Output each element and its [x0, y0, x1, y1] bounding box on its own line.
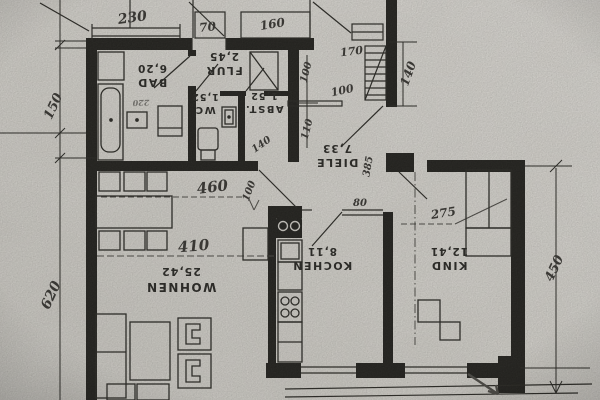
photo-vignette — [0, 0, 600, 400]
floor-plan-drawing: BAD 6,20 FLUR 2,45 WC 1,52 ABST. 1,52 DI… — [0, 0, 600, 400]
floor-plan-photo: BAD 6,20 FLUR 2,45 WC 1,52 ABST. 1,52 DI… — [0, 0, 600, 400]
